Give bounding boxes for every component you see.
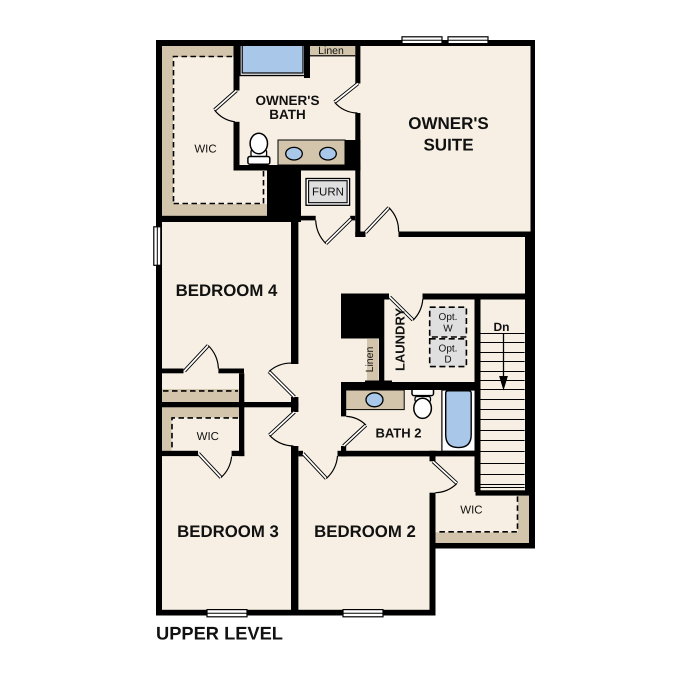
svg-text:D: D	[444, 355, 451, 366]
svg-text:SUITE: SUITE	[423, 136, 473, 155]
svg-text:OWNER'S: OWNER'S	[408, 114, 489, 133]
svg-text:W: W	[443, 324, 453, 335]
svg-text:Opt.: Opt.	[439, 312, 458, 323]
svg-text:BATH 2: BATH 2	[376, 426, 422, 441]
svg-text:Dn: Dn	[494, 320, 510, 334]
svg-text:WIC: WIC	[194, 143, 216, 155]
svg-text:BEDROOM 4: BEDROOM 4	[176, 281, 278, 300]
svg-text:BATH: BATH	[269, 107, 306, 122]
svg-text:OWNER'S: OWNER'S	[256, 93, 320, 108]
svg-text:UPPER LEVEL: UPPER LEVEL	[156, 623, 283, 644]
svg-text:WIC: WIC	[197, 431, 219, 443]
svg-text:BEDROOM 2: BEDROOM 2	[314, 522, 416, 541]
svg-text:Linen: Linen	[318, 45, 344, 57]
svg-text:Linen: Linen	[364, 347, 376, 373]
svg-text:FURN: FURN	[312, 186, 344, 198]
svg-text:WIC: WIC	[460, 505, 482, 517]
svg-text:LAUNDRY: LAUNDRY	[393, 308, 408, 371]
svg-text:BEDROOM 3: BEDROOM 3	[177, 522, 279, 541]
svg-text:Opt.: Opt.	[439, 344, 458, 355]
